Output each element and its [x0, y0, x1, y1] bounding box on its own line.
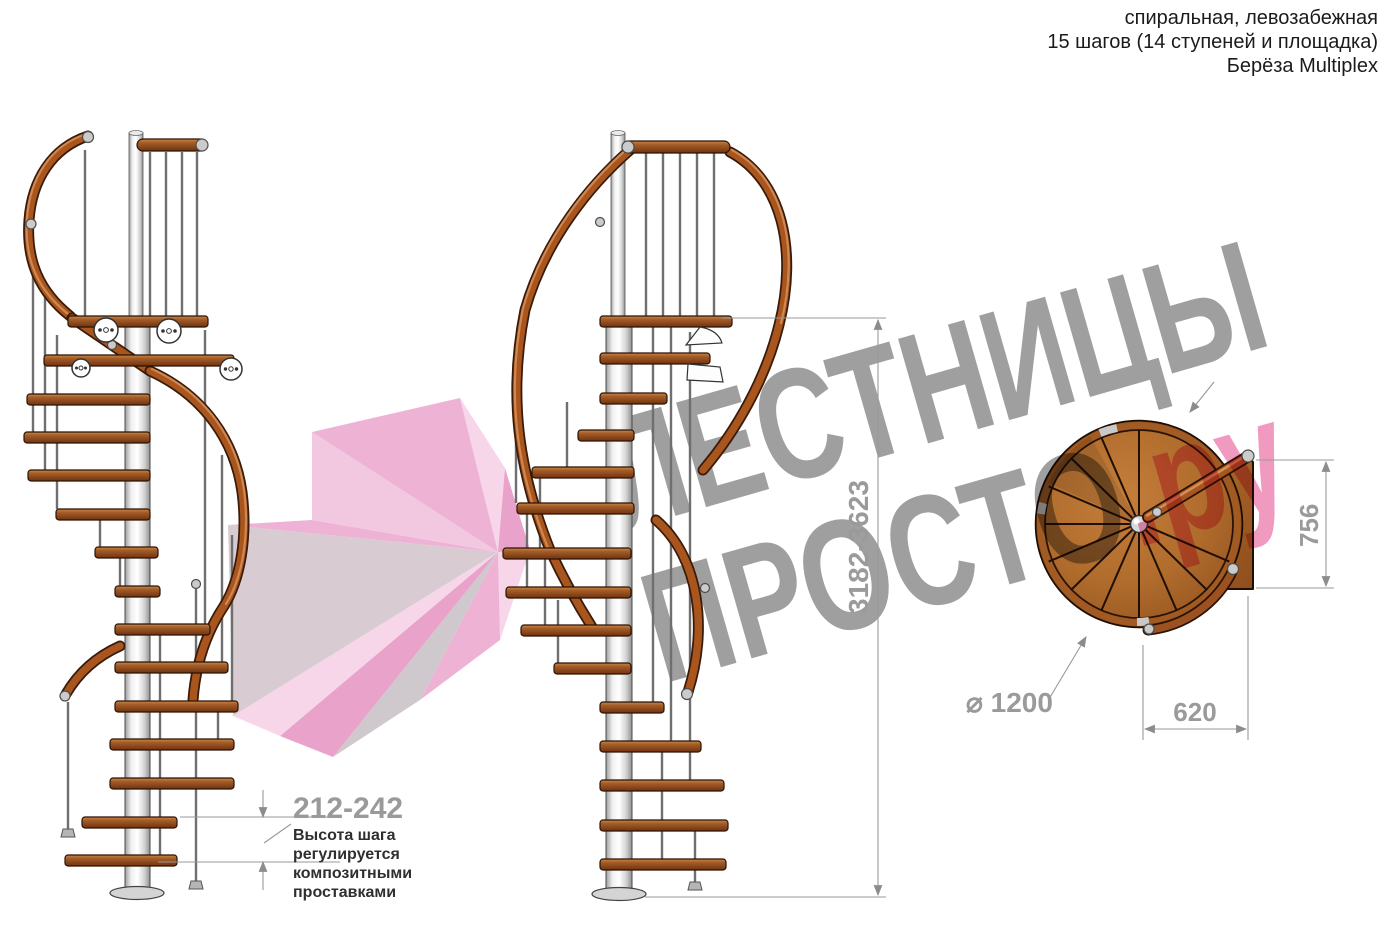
- side-view-left: [24, 131, 246, 900]
- handrails-center-view: [515, 148, 789, 700]
- title-line-material: Берёза Multiplex: [1047, 54, 1378, 78]
- baluster-foot: [688, 882, 702, 890]
- dimension-diameter: ⌀ 1200: [966, 637, 1086, 718]
- svg-text:проставками: проставками: [293, 884, 396, 901]
- baluster-foot: [189, 881, 203, 889]
- title-line-type: спиральная, левозабежная: [1047, 6, 1378, 30]
- dimension-total-height: 3182-3623: [645, 318, 886, 897]
- technical-drawing: 3182-3623 212-242 Высота шага регулирует…: [0, 0, 1400, 944]
- svg-text:композитными: композитными: [293, 865, 412, 882]
- landing-rail-center-view: [622, 141, 730, 153]
- step-height-note: Высота шага регулируется композитными пр…: [293, 827, 412, 901]
- landing-depth-value: 756: [1294, 504, 1324, 547]
- landing-width-value: 620: [1173, 697, 1216, 727]
- step-bracket: [686, 327, 722, 345]
- dimension-landing-width: 620: [1143, 596, 1248, 740]
- entry-direction-arrow: [1190, 382, 1214, 412]
- pole-base-flange: [110, 887, 164, 900]
- svg-text:регулируется: регулируется: [293, 846, 400, 863]
- title-block: спиральная, левозабежная 15 шагов (14 ст…: [1047, 6, 1378, 78]
- diameter-value: ⌀ 1200: [966, 687, 1053, 718]
- side-view-center: [503, 131, 789, 901]
- step-bracket: [687, 364, 723, 382]
- landing-rail-left-view: [137, 139, 208, 151]
- dimension-landing-depth: 756: [1256, 460, 1334, 588]
- baluster-foot: [61, 829, 75, 837]
- total-height-value: 3182-3623: [843, 480, 874, 614]
- svg-text:Высота шага: Высота шага: [293, 827, 396, 844]
- step-height-value: 212-242: [293, 792, 403, 825]
- title-line-steps: 15 шагов (14 ступеней и площадка): [1047, 30, 1378, 54]
- pole-base-flange: [592, 888, 646, 901]
